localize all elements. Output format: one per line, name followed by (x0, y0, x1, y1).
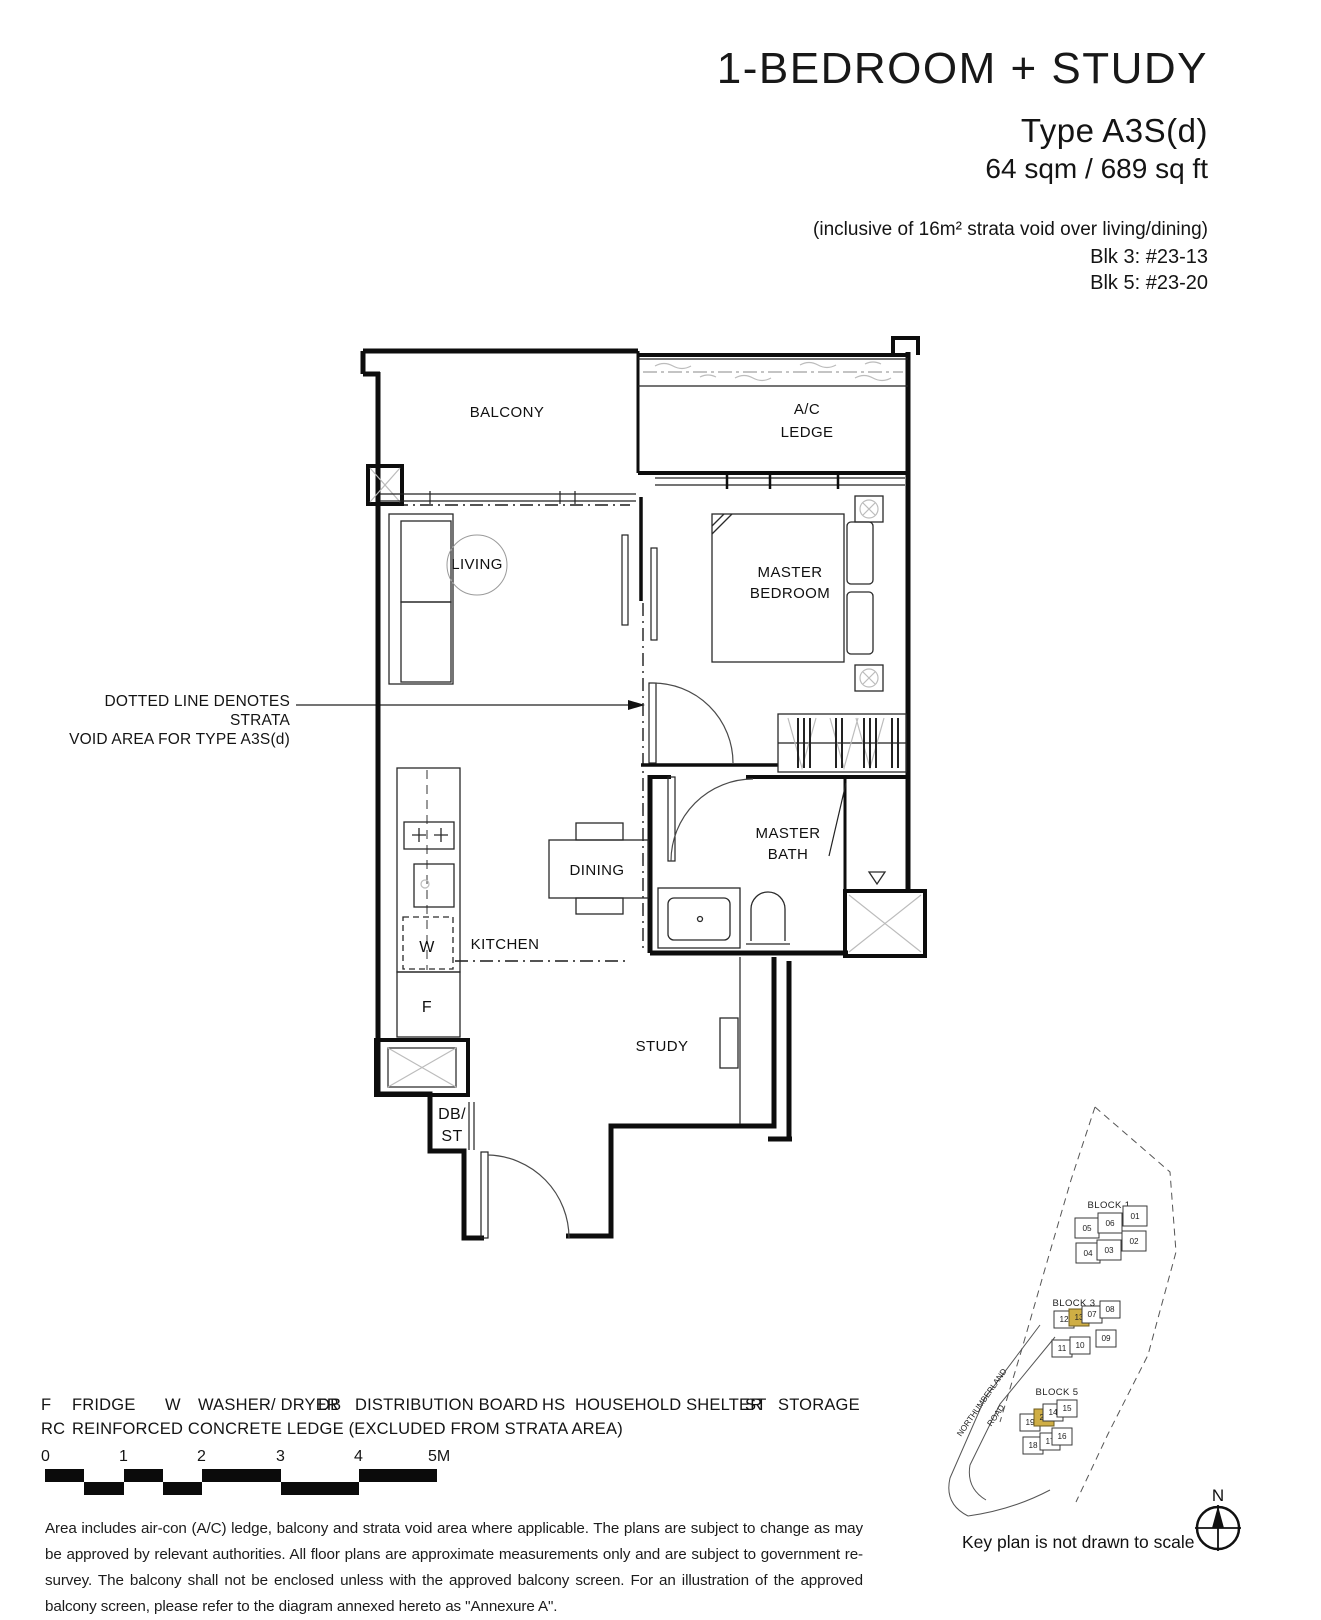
room-label-balcony: BALCONY (470, 404, 545, 421)
unit-03: 03 (1104, 1246, 1114, 1255)
north-label: N (1212, 1486, 1224, 1505)
legend-label-st: STORAGE (778, 1396, 860, 1415)
unit-18: 18 (1028, 1441, 1038, 1450)
vanity-basin (668, 898, 730, 940)
keyplan-caption: Key plan is not drawn to scale (962, 1532, 1195, 1553)
floorplan-sheet: { "header": { "title": "1-BEDROOM + STUD… (0, 0, 1321, 1613)
unit-area: 64 sqm / 689 sq ft (985, 153, 1208, 185)
strata-note: (inclusive of 16m² strata void over livi… (813, 219, 1208, 241)
room-label-ac-1: A/C (794, 401, 820, 418)
wall-balcony-top (363, 351, 638, 374)
bedroom-window-mullions (727, 474, 838, 489)
scale-block (281, 1482, 359, 1495)
room-label-dbst-1: DB/ (438, 1106, 466, 1123)
pillow-1 (847, 522, 873, 584)
study-desk (720, 1018, 738, 1068)
scale-label-2: 2 (197, 1448, 206, 1466)
blk3-ref: Blk 3: #23-13 (1090, 246, 1208, 269)
stove-burners (412, 828, 448, 842)
label-fridge: F (422, 999, 432, 1016)
room-label-ac-2: LEDGE (781, 424, 834, 441)
scale-label-4: 4 (354, 1448, 363, 1466)
legend-label-db: DISTRIBUTION BOARD (355, 1396, 538, 1415)
floor-plan-drawing: BALCONY A/C LEDGE LIVING MASTER BEDROOM … (280, 330, 955, 1250)
bedside-lamp-1-x (863, 503, 875, 515)
pillow-2 (847, 592, 873, 654)
living-window (380, 491, 636, 504)
entry-door-leaf (481, 1152, 488, 1238)
room-label-kitchen: KITCHEN (471, 936, 540, 953)
sink-tap (421, 880, 429, 888)
unit-05: 05 (1082, 1224, 1092, 1233)
unit-01: 01 (1130, 1212, 1140, 1221)
room-label-dbst-2: ST (441, 1128, 462, 1145)
scale-block (359, 1469, 437, 1482)
room-label-master-1: MASTER (758, 564, 823, 581)
sliding-panel-1 (622, 535, 628, 625)
balcony-column-x (370, 468, 400, 502)
bedside-lamp-2-x (863, 672, 875, 684)
bedroom-door-arc (652, 683, 733, 763)
legend-label-hs: HOUSEHOLD SHELTER (575, 1396, 762, 1415)
room-label-living: LIVING (451, 556, 503, 573)
unit-15: 15 (1062, 1404, 1072, 1413)
compass-needle (1212, 1506, 1224, 1528)
block5-units: 19 20 14 15 18 17 16 (1020, 1400, 1077, 1454)
sofa-cushion-2 (401, 602, 451, 682)
rc-ledge-x (388, 1048, 456, 1087)
scale-block (84, 1482, 124, 1495)
page-title: 1-BEDROOM + STUDY (717, 44, 1208, 94)
scale-label-0: 0 (41, 1448, 50, 1466)
legend-abbr-hs: HS (542, 1396, 565, 1415)
legend-label-rc: REINFORCED CONCRETE LEDGE (EXCLUDED FROM… (72, 1420, 623, 1439)
toilet (746, 892, 790, 944)
scale-block (45, 1469, 84, 1482)
unit-type: Type A3S(d) (1021, 112, 1208, 150)
unit-10: 10 (1075, 1341, 1085, 1350)
room-label-study: STUDY (636, 1038, 689, 1055)
road-label-2: ROAD (985, 1403, 1006, 1428)
scale-label-5m: 5M (428, 1448, 450, 1466)
room-label-bath-2: BATH (768, 846, 809, 863)
sofa-cushion-1 (401, 521, 451, 602)
site-boundary-left (1000, 1107, 1095, 1422)
bath-door-arc (671, 779, 753, 861)
strata-void-annotation: DOTTED LINE DENOTES STRATA VOID AREA FOR… (64, 692, 290, 749)
shaft-x (849, 895, 921, 952)
kitchen-sink (414, 864, 454, 907)
unit-16: 16 (1057, 1432, 1067, 1441)
legend-abbr-db: DB (318, 1396, 341, 1415)
unit-12: 12 (1059, 1315, 1069, 1324)
legend-abbr-w: W (165, 1396, 181, 1415)
sliding-panel-2 (651, 548, 657, 640)
wall-entry-left-steps (378, 1094, 484, 1238)
sofa (389, 514, 453, 684)
scale-label-3: 3 (276, 1448, 285, 1466)
room-label-bath-1: MASTER (756, 825, 821, 842)
block1-units: 05 06 01 04 03 02 (1075, 1206, 1147, 1263)
drain-triangle (869, 872, 885, 884)
unit-07: 07 (1087, 1310, 1097, 1319)
block3-units: 12 13 07 08 11 10 09 (1052, 1301, 1120, 1357)
unit-08: 08 (1105, 1305, 1115, 1314)
scale-block (163, 1482, 202, 1495)
dining-chair-1 (576, 823, 623, 840)
key-plan: NORTHUMBERLAND ROAD BLOCK 1 05 06 01 04 … (930, 1065, 1321, 1565)
block5-label: BLOCK 5 (1036, 1387, 1079, 1398)
wall-ac-top (638, 338, 918, 355)
bedroom-door-leaf (649, 683, 656, 763)
unit-06: 06 (1105, 1219, 1115, 1228)
scale-block (202, 1469, 281, 1482)
label-washer: W (419, 939, 435, 956)
room-label-master-2: BEDROOM (750, 585, 830, 602)
legend-label-fridge: FRIDGE (72, 1396, 136, 1415)
unit-02: 02 (1129, 1237, 1139, 1246)
rc-band-hatch (655, 362, 891, 381)
dbst-door (469, 1102, 474, 1150)
legend-abbr-f: F (41, 1396, 51, 1415)
unit-04: 04 (1083, 1249, 1093, 1258)
entry-door-arc (488, 1155, 569, 1238)
legend-abbr-st: ST (745, 1396, 766, 1415)
disclaimer-text: Area includes air-con (A/C) ledge, balco… (45, 1516, 863, 1620)
vanity-tap (698, 917, 703, 922)
bed-fold (712, 514, 732, 534)
room-label-dining: DINING (570, 862, 625, 879)
scale-block (124, 1469, 163, 1482)
legend-abbr-rc: RC (41, 1420, 65, 1439)
north-arrow: N (1195, 1486, 1241, 1551)
annotation-line-2: VOID AREA FOR TYPE A3S(d) (64, 730, 290, 749)
unit-11: 11 (1058, 1344, 1067, 1353)
scale-label-1: 1 (119, 1448, 128, 1466)
shower-door (829, 783, 846, 856)
header: 1-BEDROOM + STUDY (717, 44, 1208, 94)
bedroom-window (655, 478, 905, 485)
annotation-line-1: DOTTED LINE DENOTES STRATA (64, 692, 290, 730)
wall-study-inner (566, 957, 774, 1236)
blk5-ref: Blk 5: #23-20 (1090, 272, 1208, 295)
unit-09: 09 (1101, 1334, 1111, 1343)
dining-chair-2 (576, 898, 623, 914)
